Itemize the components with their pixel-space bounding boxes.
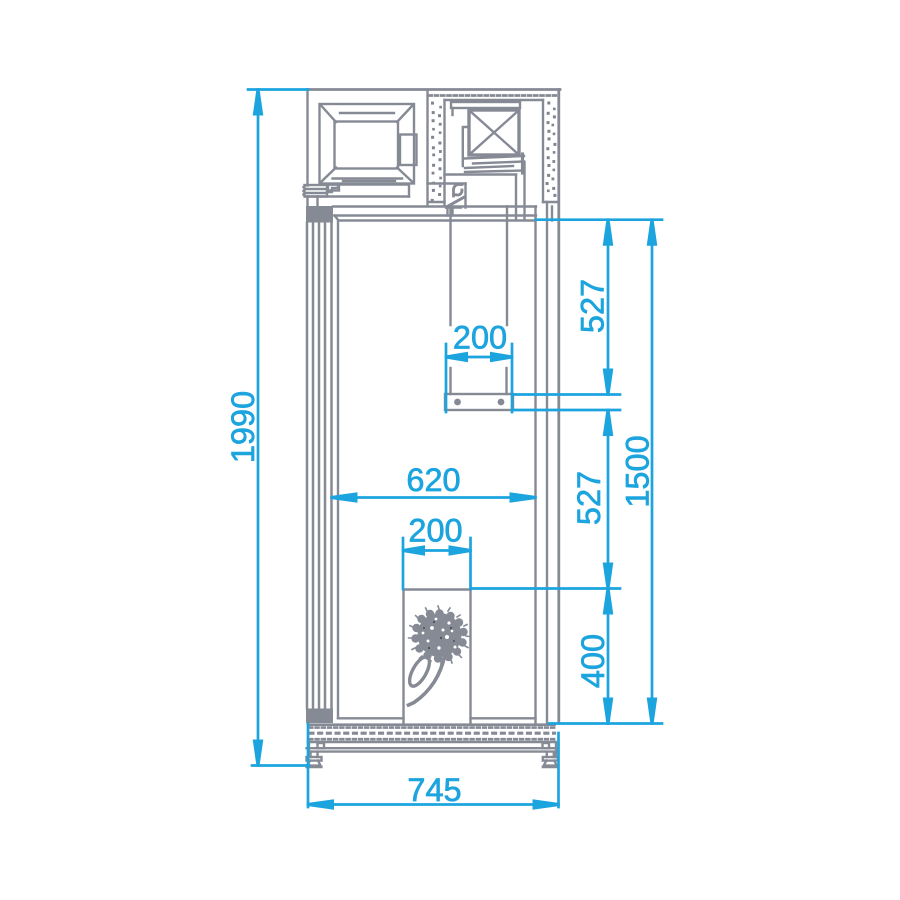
svg-text:620: 620 <box>406 462 460 498</box>
svg-text:1500: 1500 <box>620 435 656 507</box>
svg-text:527: 527 <box>575 279 611 333</box>
svg-text:400: 400 <box>575 634 611 688</box>
svg-text:745: 745 <box>407 772 461 808</box>
svg-text:1990: 1990 <box>225 391 261 463</box>
svg-text:200: 200 <box>453 320 507 356</box>
svg-text:200: 200 <box>408 513 462 549</box>
svg-text:527: 527 <box>571 471 607 525</box>
